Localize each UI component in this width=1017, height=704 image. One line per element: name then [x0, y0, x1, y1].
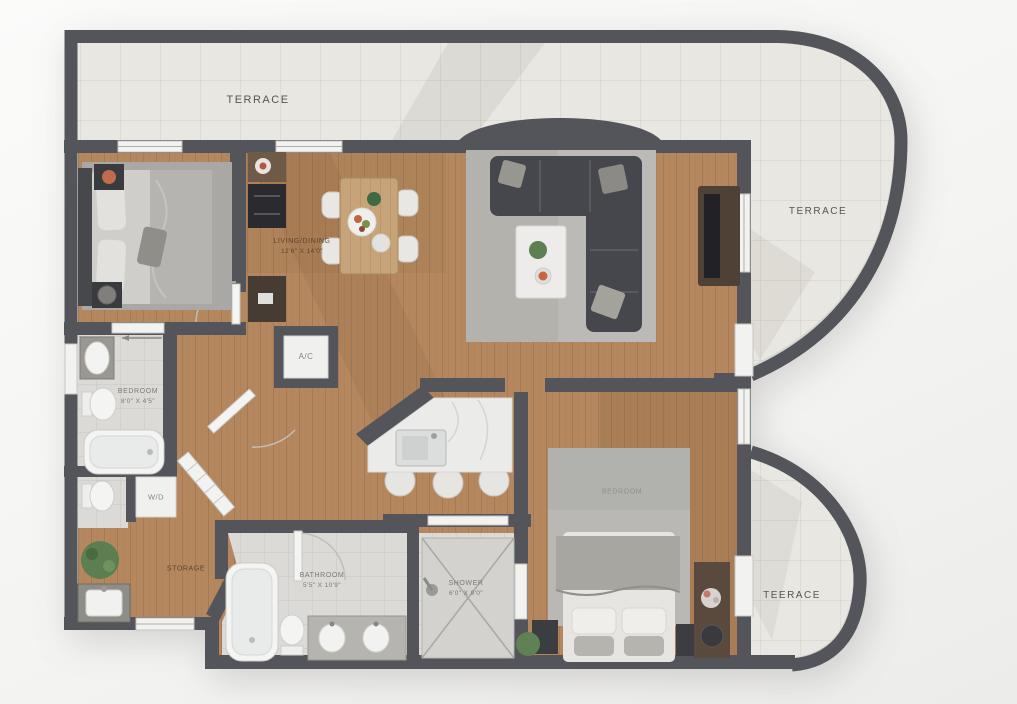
flowers-decor [102, 170, 116, 184]
faucet [101, 586, 107, 592]
tv-screen [704, 194, 720, 278]
tray-decor [98, 286, 116, 304]
food-decor [260, 163, 267, 170]
bathroom-2-label: BATHROOM 5'5" X 10'9" [300, 572, 345, 590]
coffee-table [516, 226, 566, 298]
bed-1-headboard [78, 168, 92, 306]
entry-basin [86, 590, 122, 616]
door-leaf-bedroom1 [232, 284, 240, 324]
bed-2-accent-pillow [574, 636, 614, 656]
vanity-basin [363, 624, 389, 652]
bed-2-pillow [572, 608, 616, 634]
hall-label: STORAGE [167, 566, 205, 575]
dining-chair [396, 190, 418, 216]
sink-basin [402, 436, 428, 460]
faucet [431, 433, 437, 439]
bathroom-main-label: BEDROOM 8'0" X 4'5" [118, 388, 158, 406]
floor-plan: TERRACE TERRACE TEERACE LIVING/DINING 12… [0, 0, 1017, 704]
table-plant [529, 241, 547, 259]
shower-room-label: SHOWER 6'0" X 9'0" [448, 580, 483, 598]
tub-drain [147, 449, 153, 455]
shower-room [422, 538, 514, 658]
sofa-pillow [598, 164, 629, 195]
bed-2-accent-pillow [624, 636, 664, 656]
terrace-bottom-label: TEERACE [763, 590, 821, 603]
laundry-label: W/D [148, 492, 164, 501]
living-dining-label: LIVING/DINING 12'6" X 14'0" [273, 238, 330, 256]
bowl-decor [372, 234, 390, 252]
vanity-basin [319, 624, 345, 652]
terrace-bottom-floor [751, 455, 853, 658]
tub-drain [249, 637, 255, 643]
ac-closet-label: A/C [299, 352, 314, 362]
entry-plant [81, 541, 119, 579]
cabinet-label [258, 293, 273, 304]
bedroom-2-label: BEDROOM [602, 489, 642, 498]
toilet-tank [281, 646, 303, 655]
toilet-bowl [90, 388, 116, 420]
tray-decor [701, 625, 723, 647]
bedroom-1 [78, 162, 232, 310]
terrace-top-label: TERRACE [226, 94, 289, 108]
terrace-right-label: TERRACE [789, 206, 847, 219]
dining-chair [396, 236, 418, 262]
toilet-bowl [280, 615, 304, 645]
bed-2-pillow [622, 608, 666, 634]
vanity-basin [85, 342, 109, 374]
toilet-bowl [90, 481, 114, 511]
bed-2-blanket [556, 536, 680, 590]
floor-plan-canvas [0, 0, 1017, 704]
oven [248, 184, 286, 228]
corner-plant [516, 632, 540, 656]
bottle-decor [367, 192, 381, 206]
